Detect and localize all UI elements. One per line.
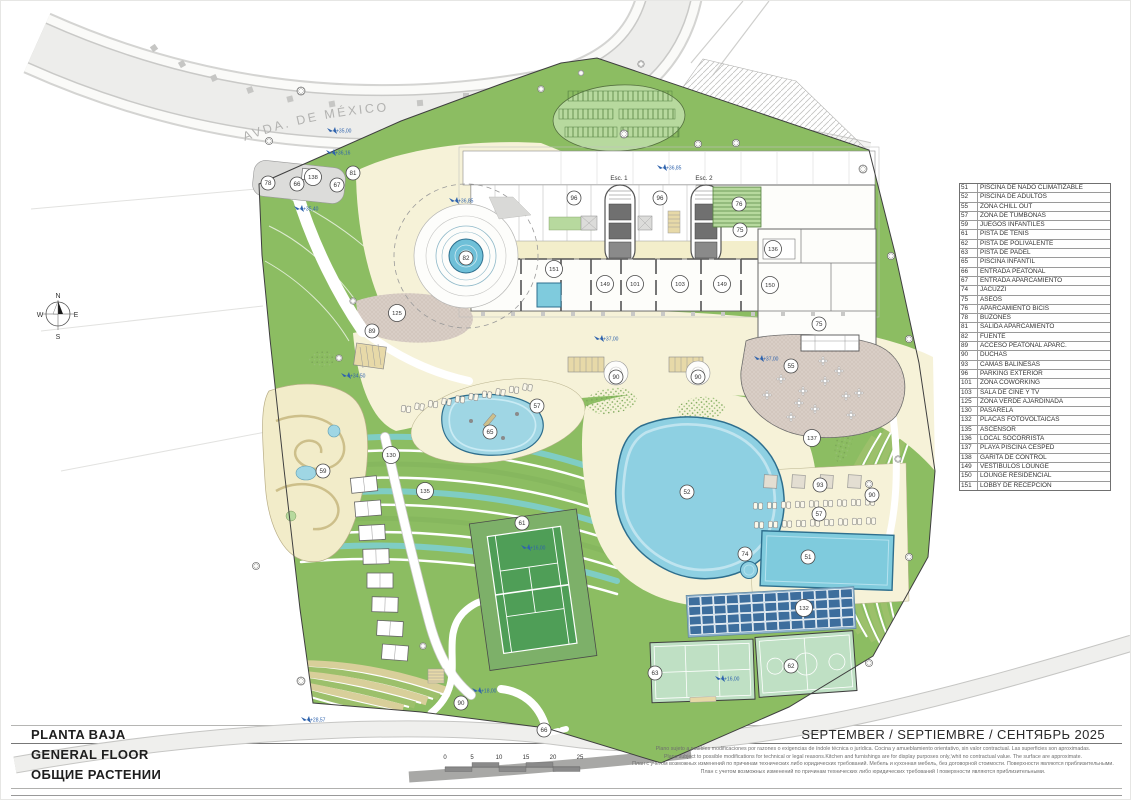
legend-row: 75ASEOS: [960, 296, 1110, 305]
legend-row: 93CAMAS BALINESAS: [960, 361, 1110, 370]
svg-text:76: 76: [736, 201, 743, 208]
legend-label: ENTRADA PEATONAL: [978, 268, 1110, 276]
svg-text:59: 59: [320, 468, 327, 475]
legend-number: 81: [960, 323, 978, 331]
plan-marker: 151: [546, 261, 563, 278]
elevation-marker: +28,57: [301, 716, 326, 724]
svg-text:66: 66: [294, 181, 301, 188]
plan-marker: 96: [567, 191, 581, 205]
plan-marker: 138: [305, 169, 322, 186]
disclaimer-line: План с учетом возможных изменений по при…: [629, 761, 1117, 769]
svg-text:+18,00: +18,00: [481, 689, 497, 695]
legend-label: ACCESO PEATONAL APARC.: [978, 342, 1110, 350]
legend-label: PISCINA INFANTIL: [978, 258, 1110, 266]
plan-marker: 89: [365, 324, 379, 338]
svg-text:62: 62: [788, 663, 795, 670]
scale-tick-label: 5: [470, 755, 474, 761]
legend-number: 149: [960, 463, 978, 471]
svg-text:78: 78: [265, 180, 272, 187]
svg-text:103: 103: [675, 282, 685, 288]
svg-text:138: 138: [308, 175, 318, 181]
legend-number: 78: [960, 314, 978, 322]
svg-text:55: 55: [788, 363, 795, 370]
legend-number: 62: [960, 240, 978, 248]
jacuzzi: [741, 562, 758, 579]
legend-label: LOBBY DE RECEPCIÓN: [978, 482, 1110, 490]
legend-number: 93: [960, 361, 978, 369]
parcel-lines: [31, 189, 271, 471]
legend-number: 55: [960, 203, 978, 211]
svg-text:101: 101: [630, 282, 640, 288]
legend-label: SALIDA APARCAMIENTO: [978, 323, 1110, 331]
plan-marker: 76: [732, 197, 746, 211]
legend-number: 74: [960, 286, 978, 294]
sheet-date: SEPTEMBER / SEPTIEMBRE / СЕНТЯБРЬ 2025: [801, 727, 1105, 742]
legend-number: 67: [960, 277, 978, 285]
plan-marker: 136: [765, 241, 782, 258]
plan-marker: 75: [812, 317, 826, 331]
plan-marker: 55: [784, 359, 798, 373]
legend-number: 132: [960, 416, 978, 424]
svg-text:+35,00: +35,00: [336, 129, 352, 135]
svg-text:+28,57: +28,57: [310, 718, 326, 724]
svg-text:89: 89: [369, 328, 376, 335]
legend-row: 132PLACAS FOTOVOLTAICAS: [960, 416, 1110, 425]
plan-marker: 137: [804, 430, 821, 447]
legend-row: 63PISTA DE PADEL: [960, 249, 1110, 258]
legend-label: PISCINA DE ADULTOS: [978, 193, 1110, 201]
plan-marker: 75: [733, 223, 747, 237]
legend-number: 75: [960, 296, 978, 304]
svg-text:90: 90: [869, 492, 876, 499]
plan-marker: 103: [672, 276, 689, 293]
legend-row: 67ENTRADA APARCAMIENTO: [960, 277, 1110, 286]
plan-marker: 81: [346, 166, 360, 180]
svg-text:82: 82: [463, 255, 470, 262]
legend-row: 76APARCAMIENTO BICIS: [960, 305, 1110, 314]
svg-text:61: 61: [519, 520, 526, 527]
access-stairs-89: [354, 343, 387, 369]
legend-row: 90DUCHAS: [960, 351, 1110, 360]
legend-label: CAMAS BALINESAS: [978, 361, 1110, 369]
disclaimer-line: План с учетом возможных изменений по при…: [629, 769, 1117, 777]
compass-e: E: [74, 312, 79, 319]
svg-text:96: 96: [571, 195, 578, 202]
legend-row: 82FUENTE: [960, 333, 1110, 342]
legend-number: 51: [960, 184, 978, 192]
svg-text:130: 130: [386, 453, 396, 459]
legend-number: 59: [960, 221, 978, 229]
svg-text:93: 93: [817, 482, 824, 489]
svg-text:+36,85: +36,85: [666, 166, 682, 172]
svg-text:52: 52: [684, 489, 691, 496]
legend-label: SALA DE CINE Y TV: [978, 389, 1110, 397]
scale-bar: 0510152025: [437, 749, 597, 779]
legend-label: APARCAMIENTO BICIS: [978, 305, 1110, 313]
svg-text:151: 151: [549, 267, 559, 273]
legend-row: 62PISTA DE POLIVALENTE: [960, 240, 1110, 249]
legend-number: 61: [960, 230, 978, 238]
plan-marker: 93: [813, 478, 827, 492]
legend-number: 96: [960, 370, 978, 378]
scale-tick-label: 10: [496, 755, 503, 761]
legend-label: PISCINA DE NADO CLIMATIZABLE: [978, 184, 1110, 192]
legend-row: 96PARKING EXTERIOR: [960, 370, 1110, 379]
sheet-title-en: GENERAL FLOOR: [31, 747, 149, 762]
svg-text:136: 136: [768, 247, 778, 253]
scale-tick-label: 15: [523, 755, 530, 761]
svg-text:90: 90: [458, 700, 465, 707]
legend-label: FUENTE: [978, 333, 1110, 341]
sheet-title-ru: ОБЩИЕ РАСТЕНИИ: [31, 767, 161, 782]
plan-marker: 57: [530, 399, 544, 413]
legend-label: DUCHAS: [978, 351, 1110, 359]
bar-counter: [801, 335, 859, 351]
kids-pool: [442, 394, 544, 455]
svg-text:+36,85: +36,85: [458, 199, 474, 205]
legend-row: 81SALIDA APARCAMIENTO: [960, 323, 1110, 332]
legend-label: PLAYA PISCINA CESPED: [978, 444, 1110, 452]
legend-number: 63: [960, 249, 978, 257]
solar-panels: [686, 587, 856, 638]
svg-text:+37,00: +37,00: [763, 357, 779, 363]
compass-s: S: [56, 334, 61, 341]
svg-text:96: 96: [657, 195, 664, 202]
disclaimer-text: Plano sujeto a posibles modificaciones p…: [629, 746, 1117, 776]
padel-court: [650, 639, 755, 704]
plan-marker: 52: [680, 485, 694, 499]
plan-marker: 78: [261, 176, 275, 190]
scale-tick-label: 20: [550, 755, 557, 761]
plan-marker: 51: [801, 550, 815, 564]
lobby-water-feature: [537, 283, 561, 307]
legend-label: ZONA CHILL OUT: [978, 203, 1110, 211]
legend-row: 138GARITA DE CONTROL: [960, 454, 1110, 463]
plan-marker: 135: [417, 483, 434, 500]
stair-label-2: Esc. 2: [695, 175, 713, 182]
plan-marker: 132: [796, 600, 813, 617]
legend-number: 89: [960, 342, 978, 350]
legend-number: 137: [960, 444, 978, 452]
svg-text:149: 149: [600, 282, 610, 288]
legend-label: ZONA DE TUMBONAS: [978, 212, 1110, 220]
legend-row: 135ASCENSOR: [960, 426, 1110, 435]
disclaimer-line: Plano sujeto a posibles modificaciones p…: [629, 746, 1117, 754]
svg-text:66: 66: [541, 727, 548, 734]
legend-number: 66: [960, 268, 978, 276]
legend-number: 135: [960, 426, 978, 434]
svg-text:+35,40: +35,40: [303, 207, 319, 213]
legend-row: 137PLAYA PISCINA CESPED: [960, 444, 1110, 453]
legend-label: PARKING EXTERIOR: [978, 370, 1110, 378]
svg-text:90: 90: [613, 374, 620, 381]
plan-marker: 130: [383, 447, 400, 464]
plan-marker: 57: [812, 507, 826, 521]
legend-row: 66ENTRADA PEATONAL: [960, 268, 1110, 277]
tennis-court: [469, 509, 597, 671]
drawing-sheet: AVDA. DE MÉXICO: [0, 0, 1131, 800]
legend-row: 74JACUZZI: [960, 286, 1110, 295]
plan-marker: 63: [648, 666, 662, 680]
legend-number: 151: [960, 482, 978, 490]
svg-text:+34,50: +34,50: [350, 374, 366, 380]
legend-number: 130: [960, 407, 978, 415]
legend-number: 136: [960, 435, 978, 443]
plan-marker: 149: [597, 276, 614, 293]
compass-n: N: [55, 293, 60, 300]
svg-text:149: 149: [717, 282, 727, 288]
legend-label: LOCAL SOCORRISTA: [978, 435, 1110, 443]
legend-row: 125ZONA VERDE AJARDINADA: [960, 398, 1110, 407]
legend-label: PISTA DE PADEL: [978, 249, 1110, 257]
svg-text:+16,00: +16,00: [724, 677, 740, 683]
legend-row: 150LOUNGE RESIDENCIAL: [960, 472, 1110, 481]
legend-number: 76: [960, 305, 978, 313]
legend-label: ZONA VERDE AJARDINADA: [978, 398, 1110, 406]
legend-row: 130PASARELA: [960, 407, 1110, 416]
svg-text:81: 81: [350, 170, 357, 177]
svg-text:74: 74: [742, 551, 749, 558]
svg-text:+37,00: +37,00: [603, 337, 619, 343]
compass: N S W E: [37, 293, 79, 341]
legend-label: PISTA DE TENIS: [978, 230, 1110, 238]
svg-text:75: 75: [737, 227, 744, 234]
legend-row: 149VESTÍBULOS LOUNGE: [960, 463, 1110, 472]
plan-marker: 74: [738, 547, 752, 561]
legend-row: 65PISCINA INFANTIL: [960, 258, 1110, 267]
svg-text:+16,00: +16,00: [530, 546, 546, 552]
svg-text:57: 57: [534, 403, 541, 410]
svg-text:125: 125: [392, 311, 402, 317]
legend-label: JACUZZI: [978, 286, 1110, 294]
svg-text:67: 67: [334, 182, 341, 189]
legend-label: ASCENSOR: [978, 426, 1110, 434]
plan-marker: 150: [762, 277, 779, 294]
legend-row: 55ZONA CHILL OUT: [960, 203, 1110, 212]
plan-marker: 90: [609, 370, 623, 384]
scale-tick-label: 0: [443, 755, 447, 761]
legend-label: ZONA COWORKING: [978, 379, 1110, 387]
svg-text:150: 150: [765, 283, 775, 289]
svg-text:137: 137: [807, 436, 817, 442]
svg-text:132: 132: [799, 606, 809, 612]
plan-marker: 59: [316, 464, 330, 478]
legend-row: 52PISCINA DE ADULTOS: [960, 193, 1110, 202]
legend-row: 151LOBBY DE RECEPCIÓN: [960, 482, 1110, 490]
legend-label: GARITA DE CONTROL: [978, 454, 1110, 462]
plan-marker: 149: [714, 276, 731, 293]
svg-text:+36,16: +36,16: [335, 151, 351, 157]
sheet-title-es: PLANTA BAJA: [31, 727, 126, 742]
svg-text:90: 90: [695, 374, 702, 381]
legend-number: 150: [960, 472, 978, 480]
plan-marker: 90: [454, 696, 468, 710]
legend-row: 136LOCAL SOCORRISTA: [960, 435, 1110, 444]
legend-label: ASEOS: [978, 296, 1110, 304]
svg-text:65: 65: [487, 429, 494, 436]
stair-label-1: Esc. 1: [610, 175, 628, 182]
scale-tick-label: 25: [577, 755, 584, 761]
legend-number: 103: [960, 389, 978, 397]
legend-label: PLACAS FOTOVOLTAICAS: [978, 416, 1110, 424]
legend-number: 90: [960, 351, 978, 359]
plan-marker: 101: [627, 276, 644, 293]
main-building: [459, 147, 879, 347]
legend-number: 125: [960, 398, 978, 406]
legend-number: 57: [960, 212, 978, 220]
plan-marker: 125: [389, 305, 406, 322]
legend-label: PISTA DE POLIVALENTE: [978, 240, 1110, 248]
plan-marker: 62: [784, 659, 798, 673]
legend-row: 101ZONA COWORKING: [960, 379, 1110, 388]
legend-number: 52: [960, 193, 978, 201]
plan-marker: 66: [537, 723, 551, 737]
legend-label: VESTÍBULOS LOUNGE: [978, 463, 1110, 471]
plan-marker: 67: [330, 178, 344, 192]
legend-row: 89ACCESO PEATONAL APARC.: [960, 342, 1110, 351]
plan-marker: 90: [691, 370, 705, 384]
legend-row: 103SALA DE CINE Y TV: [960, 389, 1110, 398]
multisport-court: [755, 631, 857, 698]
legend-row: 51PISCINA DE NADO CLIMATIZABLE: [960, 184, 1110, 193]
svg-text:57: 57: [816, 511, 823, 518]
svg-text:63: 63: [652, 670, 659, 677]
legend-label: BUZONES: [978, 314, 1110, 322]
legend-number: 82: [960, 333, 978, 341]
legend-label: JUEGOS INFANTILES: [978, 221, 1110, 229]
legend-label: PASARELA: [978, 407, 1110, 415]
plan-marker: 90: [865, 488, 879, 502]
legend-number: 101: [960, 379, 978, 387]
compass-w: W: [37, 312, 44, 319]
legend-row: 57ZONA DE TUMBONAS: [960, 212, 1110, 221]
plan-marker: 96: [653, 191, 667, 205]
legend-row: 59JUEGOS INFANTILES: [960, 221, 1110, 230]
legend-number: 65: [960, 258, 978, 266]
svg-text:135: 135: [420, 489, 430, 495]
legend-label: ENTRADA APARCAMIENTO: [978, 277, 1110, 285]
legend-number: 138: [960, 454, 978, 462]
plan-marker: 65: [483, 425, 497, 439]
plan-marker: 61: [515, 516, 529, 530]
svg-text:75: 75: [816, 321, 823, 328]
legend-row: 61PISTA DE TENIS: [960, 230, 1110, 239]
legend-label: LOUNGE RESIDENCIAL: [978, 472, 1110, 480]
legend-panel: 51PISCINA DE NADO CLIMATIZABLE52PISCINA …: [959, 183, 1111, 491]
legend-row: 78BUZONES: [960, 314, 1110, 323]
plan-marker: 66: [290, 177, 304, 191]
plan-marker: 82: [459, 251, 473, 265]
svg-text:51: 51: [805, 554, 812, 561]
